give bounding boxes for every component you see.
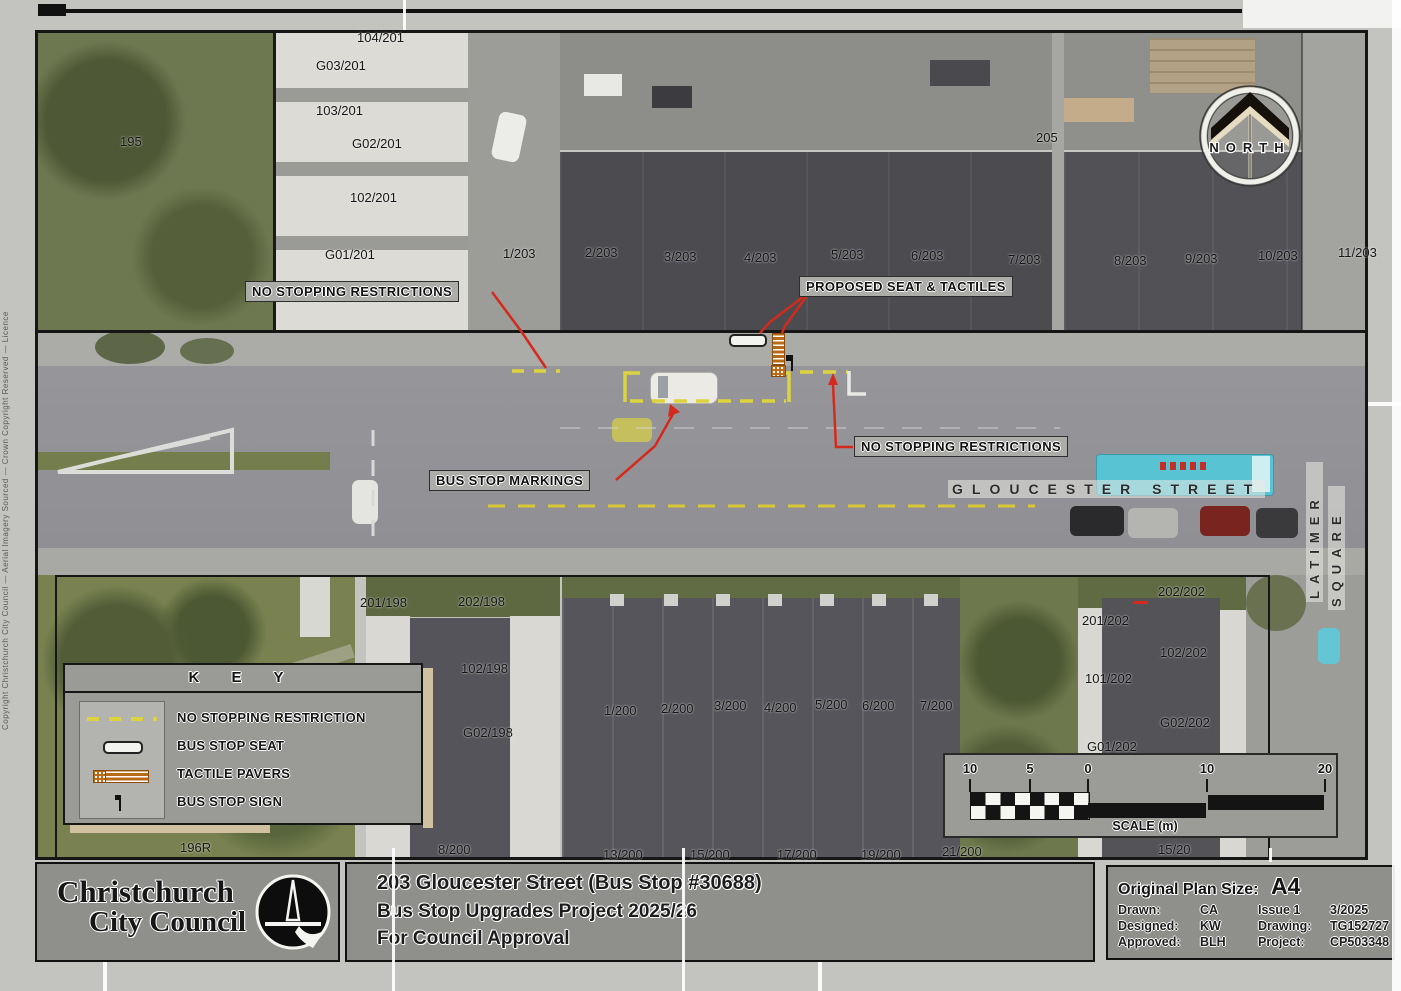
street-name-square: SQUARE <box>1328 486 1345 610</box>
lot-label: 195 <box>120 134 142 149</box>
scale-checker <box>970 805 1090 820</box>
plan-size-value: A4 <box>1271 873 1300 899</box>
lot-label: 103/201 <box>316 103 363 118</box>
key-item-label: BUS STOP SEAT <box>177 738 284 753</box>
lot-label: 11/203 <box>1338 245 1377 260</box>
bus-stop-sign-flag <box>786 355 792 361</box>
lot-label: 6/203 <box>911 248 944 263</box>
logo-block: Christchurch City Council <box>35 862 340 962</box>
lot-label: 19/200 <box>861 847 901 862</box>
scale-tick: 5 <box>1026 761 1033 776</box>
lot-label: G01/202 <box>1087 739 1137 754</box>
proposed-seat-symbol <box>729 334 767 347</box>
north-symbol: NORTH <box>1197 80 1303 188</box>
lot-label: G02/198 <box>463 725 513 740</box>
drawing-subtitle: Bus Stop Upgrades Project 2025/26 <box>377 901 697 923</box>
lot-label: 13/200 <box>603 847 643 862</box>
scale-segment <box>1208 795 1324 810</box>
info-row: Drawn:CA Issue 13/2025 <box>1118 903 1397 917</box>
street-name-latimer: LATIMER <box>1306 462 1323 602</box>
lot-label: 10/203 <box>1258 248 1298 263</box>
lot-label: G01/201 <box>325 247 375 262</box>
scale-segment <box>1088 803 1206 818</box>
lot-label: 102/201 <box>350 190 397 205</box>
drawing-status: For Council Approval <box>377 928 569 950</box>
info-row: Designed:KW Drawing:TG152727 <box>1118 919 1397 933</box>
lot-label: 2/203 <box>585 245 618 260</box>
scale-caption: SCALE (m) <box>1035 819 1255 833</box>
key-item-label: TACTILE PAVERS <box>177 766 290 781</box>
lot-label: 202/198 <box>458 594 505 609</box>
lot-label: 2/200 <box>661 701 694 716</box>
lot-label: 6/200 <box>862 698 895 713</box>
lot-label: 102/202 <box>1160 645 1207 660</box>
lot-label: 104/201 <box>357 30 404 45</box>
callout-no-stopping-2: NO STOPPING RESTRICTIONS <box>854 436 1068 457</box>
ccc-logo <box>253 872 333 952</box>
key-shadow <box>70 825 270 833</box>
sign-symbol-flag <box>115 795 120 800</box>
tactile-pavers-symbol <box>772 333 785 365</box>
callout-proposed-seat: PROPOSED SEAT & TACTILES <box>799 276 1013 297</box>
lot-label: 3/200 <box>714 698 747 713</box>
plan-size-label: Original Plan Size: <box>1118 881 1258 898</box>
tactile-dots-symbol <box>771 365 786 377</box>
lot-label: 8/200 <box>438 842 471 857</box>
lot-label: 201/202 <box>1082 613 1129 628</box>
lot-label: G03/201 <box>316 58 366 73</box>
title-block: 203 Gloucester Street (Bus Stop #30688) … <box>345 862 1095 962</box>
lot-label: 17/200 <box>777 847 817 862</box>
lot-label: 9/203 <box>1185 251 1218 266</box>
lot-label: 201/198 <box>360 595 407 610</box>
scale-tick: 10 <box>1200 761 1214 776</box>
page-edge-line <box>38 9 1242 13</box>
info-row: Approved:BLH Project:CP503348 <box>1118 935 1397 949</box>
lot-label: 202/202 <box>1158 584 1205 599</box>
tactile-symbol <box>105 770 149 783</box>
key-shadow <box>423 668 433 828</box>
logo-text-2: City Council <box>89 906 246 939</box>
lot-label: G02/201 <box>352 136 402 151</box>
lot-label: 205 <box>1036 130 1058 145</box>
lot-label: 15/200 <box>690 847 730 862</box>
lot-label: 3/203 <box>664 249 697 264</box>
lot-label: 196R <box>180 840 211 855</box>
drawing-title: 203 Gloucester Street (Bus Stop #30688) <box>377 872 762 895</box>
copyright-side-note: Copyright Christchurch City Council — Ae… <box>1 330 10 730</box>
plan-page: 195104/201G03/201103/201G02/201102/201G0… <box>0 0 1401 991</box>
seat-symbol <box>103 741 143 754</box>
key-title: K E Y <box>65 665 421 693</box>
logo-text-1: Christchurch <box>57 874 234 910</box>
lot-label: 101/202 <box>1085 671 1132 686</box>
lot-label: G02/202 <box>1160 715 1210 730</box>
lot-label: 21/200 <box>942 844 982 859</box>
lot-label: 1/203 <box>503 246 536 261</box>
lot-label: 15/20 <box>1158 842 1191 857</box>
street-name-gloucester: GLOUCESTER STREET <box>948 480 1265 498</box>
section-line <box>35 330 1368 333</box>
no-stopping-line-symbol <box>87 717 157 721</box>
north-label: NORTH <box>1209 140 1290 155</box>
scale-tick: 0 <box>1084 761 1091 776</box>
lot-label: 7/200 <box>920 698 953 713</box>
lot-label: 4/203 <box>744 250 777 265</box>
key-item-label: BUS STOP SIGN <box>177 794 282 809</box>
scale-bar: 10 5 0 10 20 SCALE (m) <box>943 753 1338 838</box>
lot-label: 102/198 <box>461 661 508 676</box>
lot-label: 5/200 <box>815 697 848 712</box>
callout-bus-stop-markings: BUS STOP MARKINGS <box>429 470 590 491</box>
key-item-label: NO STOPPING RESTRICTION <box>177 710 366 725</box>
lot-label: 7/203 <box>1008 252 1041 267</box>
tactile-dots <box>93 770 106 783</box>
scale-tick: 10 <box>963 761 977 776</box>
key-box: K E Y NO STOPPING RESTRICTION BUS STOP S… <box>63 663 423 825</box>
lot-label: 8/203 <box>1114 253 1147 268</box>
info-block: Original Plan Size: A4 Drawn:CA Issue 13… <box>1106 865 1395 960</box>
lot-label: 4/200 <box>764 700 797 715</box>
scale-tick: 20 <box>1318 761 1332 776</box>
callout-no-stopping-1: NO STOPPING RESTRICTIONS <box>245 281 459 302</box>
margin-white <box>1243 0 1401 28</box>
lot-label: 5/203 <box>831 247 864 262</box>
lot-label: 1/200 <box>604 703 637 718</box>
